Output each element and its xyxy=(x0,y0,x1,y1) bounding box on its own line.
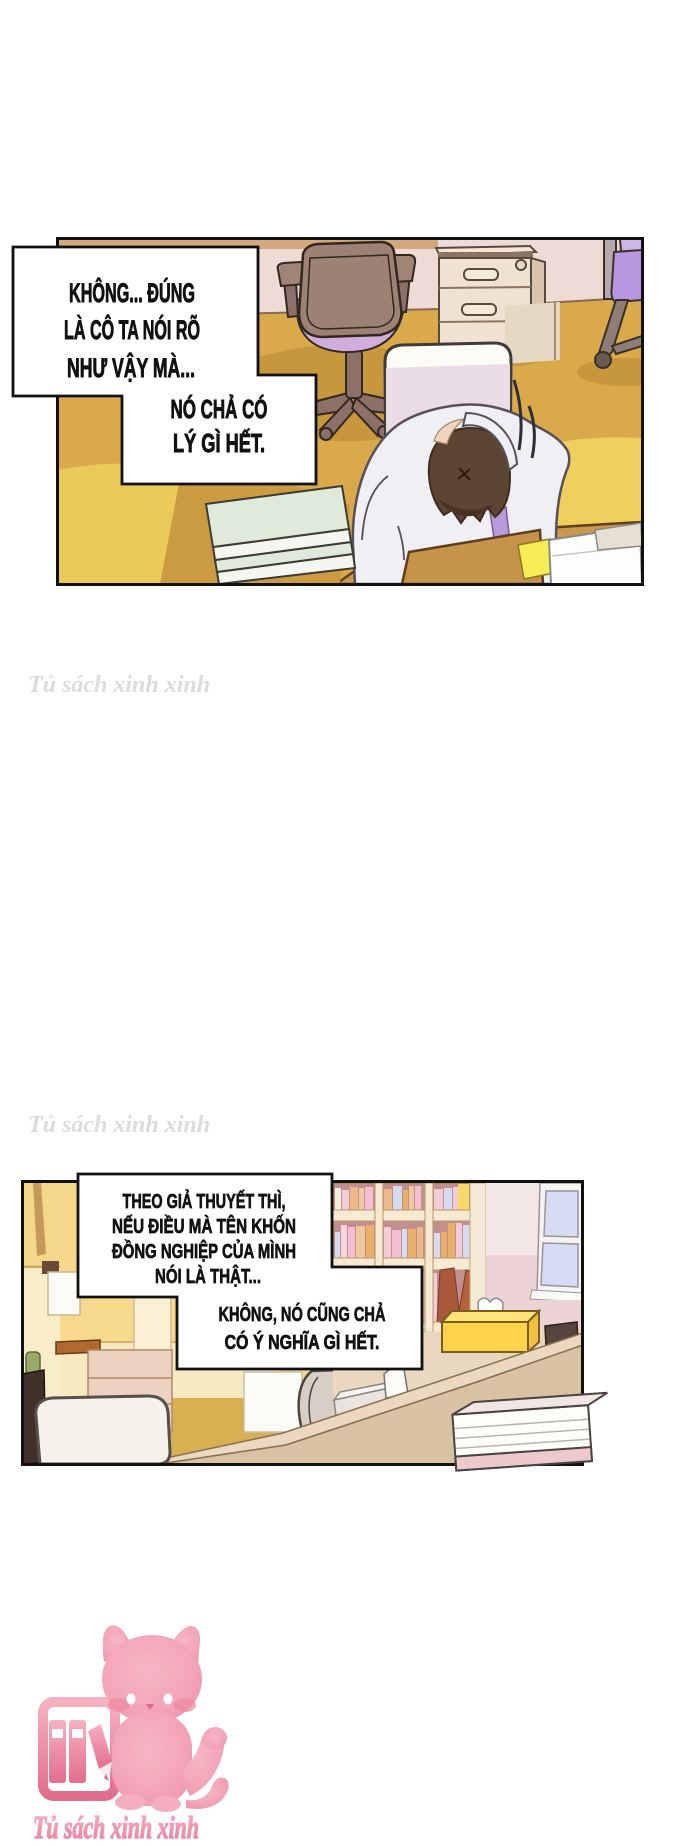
svg-text:KHÔNG, NÓ CŨNG CHẢ: KHÔNG, NÓ CŨNG CHẢ xyxy=(219,1302,386,1326)
svg-text:NẾU ĐIỀU MÀ TÊN KHỐN: NẾU ĐIỀU MÀ TÊN KHỐN xyxy=(112,1214,296,1238)
svg-text:CÓ Ý NGHĨA GÌ HẾT.: CÓ Ý NGHĨA GÌ HẾT. xyxy=(225,1330,380,1354)
svg-text:Tủ sách xinh xinh: Tủ sách xinh xinh xyxy=(28,1112,210,1138)
svg-text:ĐỒNG NGHIỆP CỦA MÌNH: ĐỒNG NGHIỆP CỦA MÌNH xyxy=(112,1239,296,1263)
svg-text:LÝ GÌ HẾT.: LÝ GÌ HẾT. xyxy=(173,428,265,458)
svg-text:LÀ CÔ TA NÓI RÕ: LÀ CÔ TA NÓI RÕ xyxy=(64,314,200,345)
svg-text:Tủ sách xinh xinh: Tủ sách xinh xinh xyxy=(33,1809,199,1845)
svg-text:NÓ CHẢ CÓ: NÓ CHẢ CÓ xyxy=(171,394,268,424)
svg-text:KHÔNG... ĐÚNG: KHÔNG... ĐÚNG xyxy=(69,277,195,308)
svg-text:NÓI LÀ THẬT...: NÓI LÀ THẬT... xyxy=(155,1264,261,1288)
svg-text:NHƯ VẬY MÀ...: NHƯ VẬY MÀ... xyxy=(67,352,195,383)
svg-text:Tủ sách xinh xinh: Tủ sách xinh xinh xyxy=(28,672,210,698)
svg-text:THEO GIẢ THUYẾT THÌ,: THEO GIẢ THUYẾT THÌ, xyxy=(123,1190,286,1213)
